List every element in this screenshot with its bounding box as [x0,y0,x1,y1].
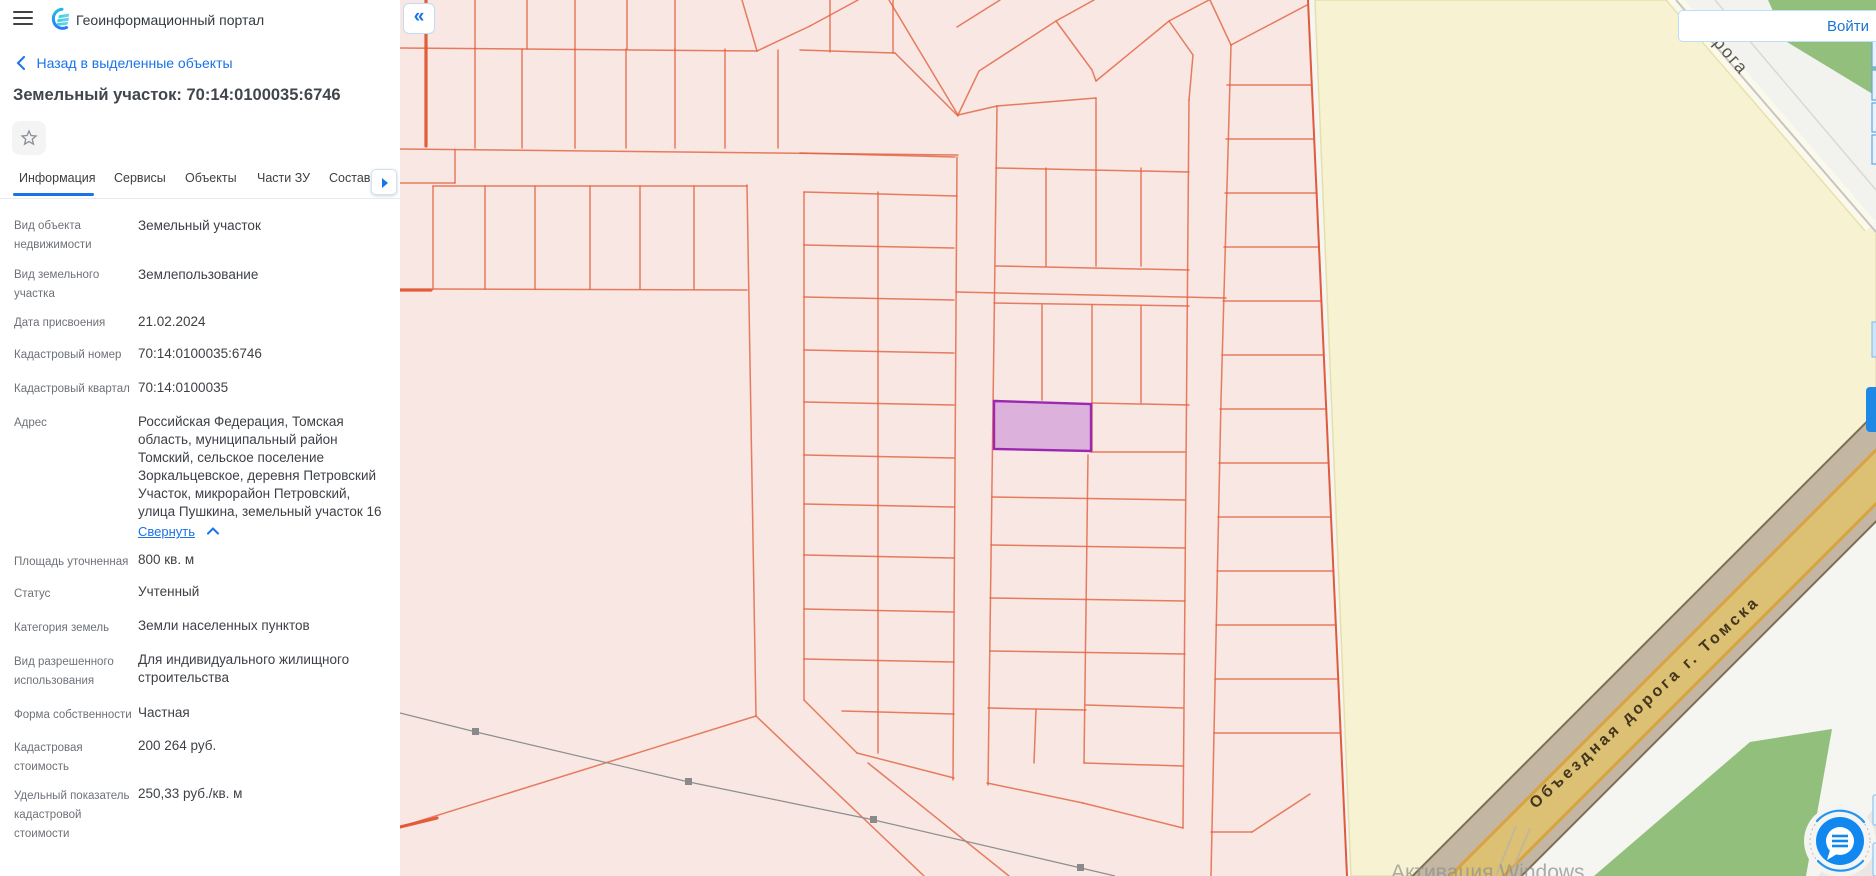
svg-text:Активация Windows: Активация Windows [1391,861,1585,876]
